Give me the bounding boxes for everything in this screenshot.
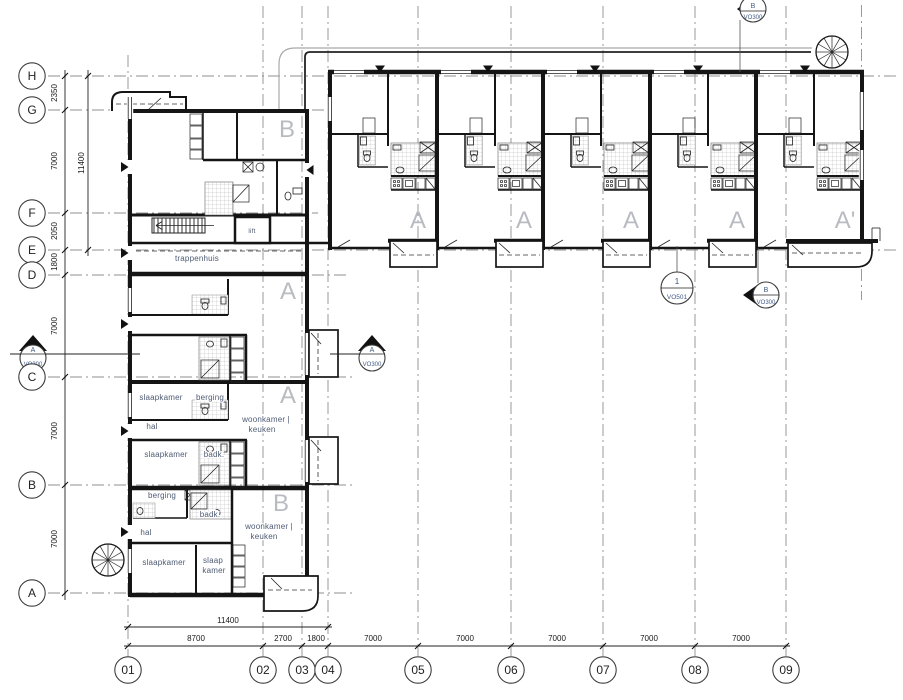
grid-row-label: E (28, 243, 36, 257)
dim-text: 7000 (50, 152, 59, 170)
dim-text: 7000 (548, 634, 566, 643)
dim-text: 8700 (187, 634, 205, 643)
room-label: slaapkamer (144, 450, 187, 459)
room-label-trappenhuis: trappenhuis (175, 254, 219, 263)
grid-col-label: 06 (504, 663, 518, 677)
room-label: keuken (251, 532, 278, 541)
dimensions-left: 2350 7000 2050 1800 7000 7000 7000 11400 (50, 70, 91, 600)
grid-row-label: G (27, 103, 36, 117)
dim-text: 7000 (50, 317, 59, 335)
unit-label: B (279, 116, 295, 143)
balconies-east (264, 330, 338, 611)
grid-bubbles-rows: H G F E D C B A (19, 63, 45, 606)
apartment-b-bottom (132, 488, 245, 595)
svg-text:VO501: VO501 (667, 294, 688, 301)
dim-text: 2050 (50, 222, 59, 240)
room-label-lift: lift (248, 228, 255, 235)
spiral-stair-bottom (92, 544, 124, 576)
room-label: slaapkamer (139, 393, 182, 402)
floor-plan-page: A A A A A' (0, 0, 903, 700)
grid-row-label: A (28, 586, 36, 600)
room-label: slaap (203, 556, 223, 565)
dim-text: 7000 (456, 634, 474, 643)
dim-text: 11400 (77, 152, 86, 174)
unit-label: A (623, 207, 639, 234)
svg-text:B: B (751, 3, 756, 10)
room-label: woonkamer | (241, 415, 290, 424)
unit-label: B (273, 490, 289, 517)
svg-text:VO300: VO300 (744, 15, 763, 21)
unit-label: A (280, 382, 296, 409)
room-label: woonkamer | (244, 522, 293, 531)
svg-text:A: A (31, 347, 36, 354)
svg-text:VO300: VO300 (757, 300, 776, 306)
unit-label: A' (835, 207, 856, 234)
room-label: hal (146, 422, 157, 431)
unit-label: A (729, 207, 745, 234)
svg-text:VO300: VO300 (363, 362, 382, 368)
detail-marker: 1 VO501 (661, 246, 693, 304)
gallery-walkway (279, 48, 812, 111)
svg-text:1: 1 (675, 276, 680, 286)
dim-text: 1800 (307, 634, 325, 643)
grid-col-label: 08 (688, 663, 702, 677)
room-label: keuken (249, 425, 276, 434)
room-label: berging (196, 393, 224, 402)
room-label: badk. (200, 510, 221, 519)
dim-text: 11400 (217, 616, 239, 625)
svg-text:B: B (764, 287, 769, 294)
room-label: badk. (204, 450, 225, 459)
dim-text: 7000 (50, 530, 59, 548)
stairwell (136, 217, 302, 251)
floor-plan-canvas: A A A A A' (0, 0, 903, 700)
grid-row-label: F (28, 206, 35, 220)
unit-label: A (280, 278, 296, 305)
spiral-stair-top (816, 36, 848, 68)
grid-row-label: B (28, 478, 36, 492)
grid-col-label: 01 (121, 663, 135, 677)
grid-col-label: 04 (321, 663, 335, 677)
room-label: kamer (202, 566, 225, 575)
room-label: slaapkamer (142, 558, 185, 567)
room-label: hal (140, 528, 151, 537)
grid-bubbles-cols: 01 02 03 04 05 06 07 08 09 (115, 657, 799, 683)
apartment-a1 (132, 279, 247, 382)
dimensions-bottom: 11400 8700 2700 1800 7000 7000 7000 7000… (124, 616, 790, 649)
grid-row-label: H (28, 69, 37, 83)
markers: B VO300 A VO300 A VO300 1 VO501 B VO300 (10, 0, 779, 371)
dim-text: 7000 (640, 634, 658, 643)
section-marker-top: B VO300 (737, 0, 766, 72)
dim-text: 2700 (274, 634, 292, 643)
dim-text: 1800 (50, 253, 59, 271)
unit-label: A (516, 207, 532, 234)
unit-label: A (410, 207, 426, 234)
grid-col-label: 02 (256, 663, 270, 677)
dim-text: 7000 (732, 634, 750, 643)
dim-text: 2350 (50, 84, 59, 102)
grid-col-label: 05 (411, 663, 425, 677)
grid-col-label: 03 (295, 663, 309, 677)
left-wing: B A A B trappenhuis lift slaapkamer berg… (92, 92, 338, 611)
grid-col-label: 09 (779, 663, 793, 677)
grid-col-label: 07 (596, 663, 610, 677)
svg-text:A: A (370, 347, 375, 354)
dim-text: 7000 (50, 422, 59, 440)
grid-row-label: D (28, 268, 37, 282)
dim-text: 7000 (364, 634, 382, 643)
grid-row-label: C (28, 370, 37, 384)
room-label: berging (148, 491, 176, 500)
